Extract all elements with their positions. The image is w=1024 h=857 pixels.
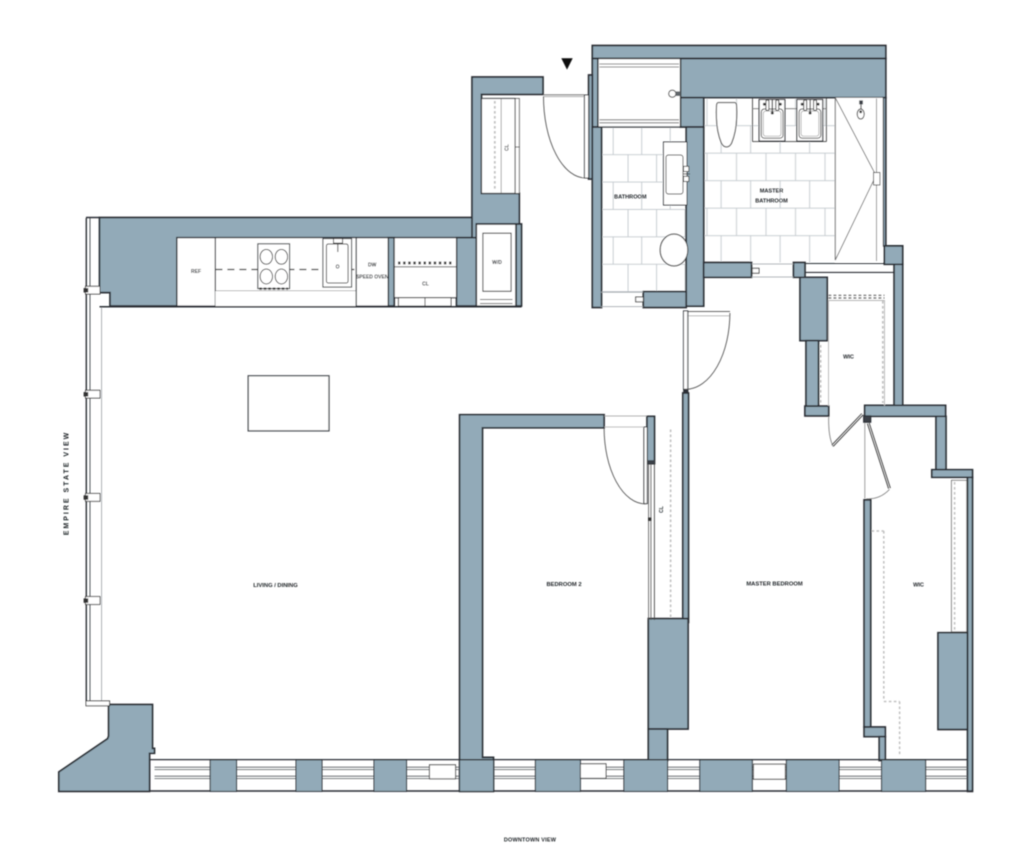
svg-text:O: O	[336, 265, 340, 271]
svg-text:REF: REF	[191, 269, 201, 275]
svg-text:DW: DW	[368, 263, 377, 269]
svg-text:W/D: W/D	[492, 260, 502, 266]
svg-text:WIC: WIC	[913, 583, 924, 589]
svg-text:SPEED OVEN: SPEED OVEN	[356, 275, 389, 281]
svg-text:CL: CL	[422, 282, 429, 288]
svg-text:BEDROOM 2: BEDROOM 2	[546, 582, 581, 588]
svg-text:BATHROOM: BATHROOM	[614, 194, 647, 200]
svg-text:DOWNTOWN VIEW: DOWNTOWN VIEW	[504, 838, 557, 844]
svg-text:CL: CL	[659, 506, 665, 513]
svg-text:CL: CL	[505, 144, 511, 151]
svg-text:WIC: WIC	[843, 355, 854, 361]
svg-text:MASTER: MASTER	[760, 189, 784, 195]
svg-text:MASTER BEDROOM: MASTER BEDROOM	[746, 582, 803, 588]
svg-text:BATHROOM: BATHROOM	[755, 199, 788, 205]
svg-text:LIVING / DINING: LIVING / DINING	[253, 583, 298, 589]
svg-text:EMPIRE STATE VIEW: EMPIRE STATE VIEW	[64, 431, 71, 536]
